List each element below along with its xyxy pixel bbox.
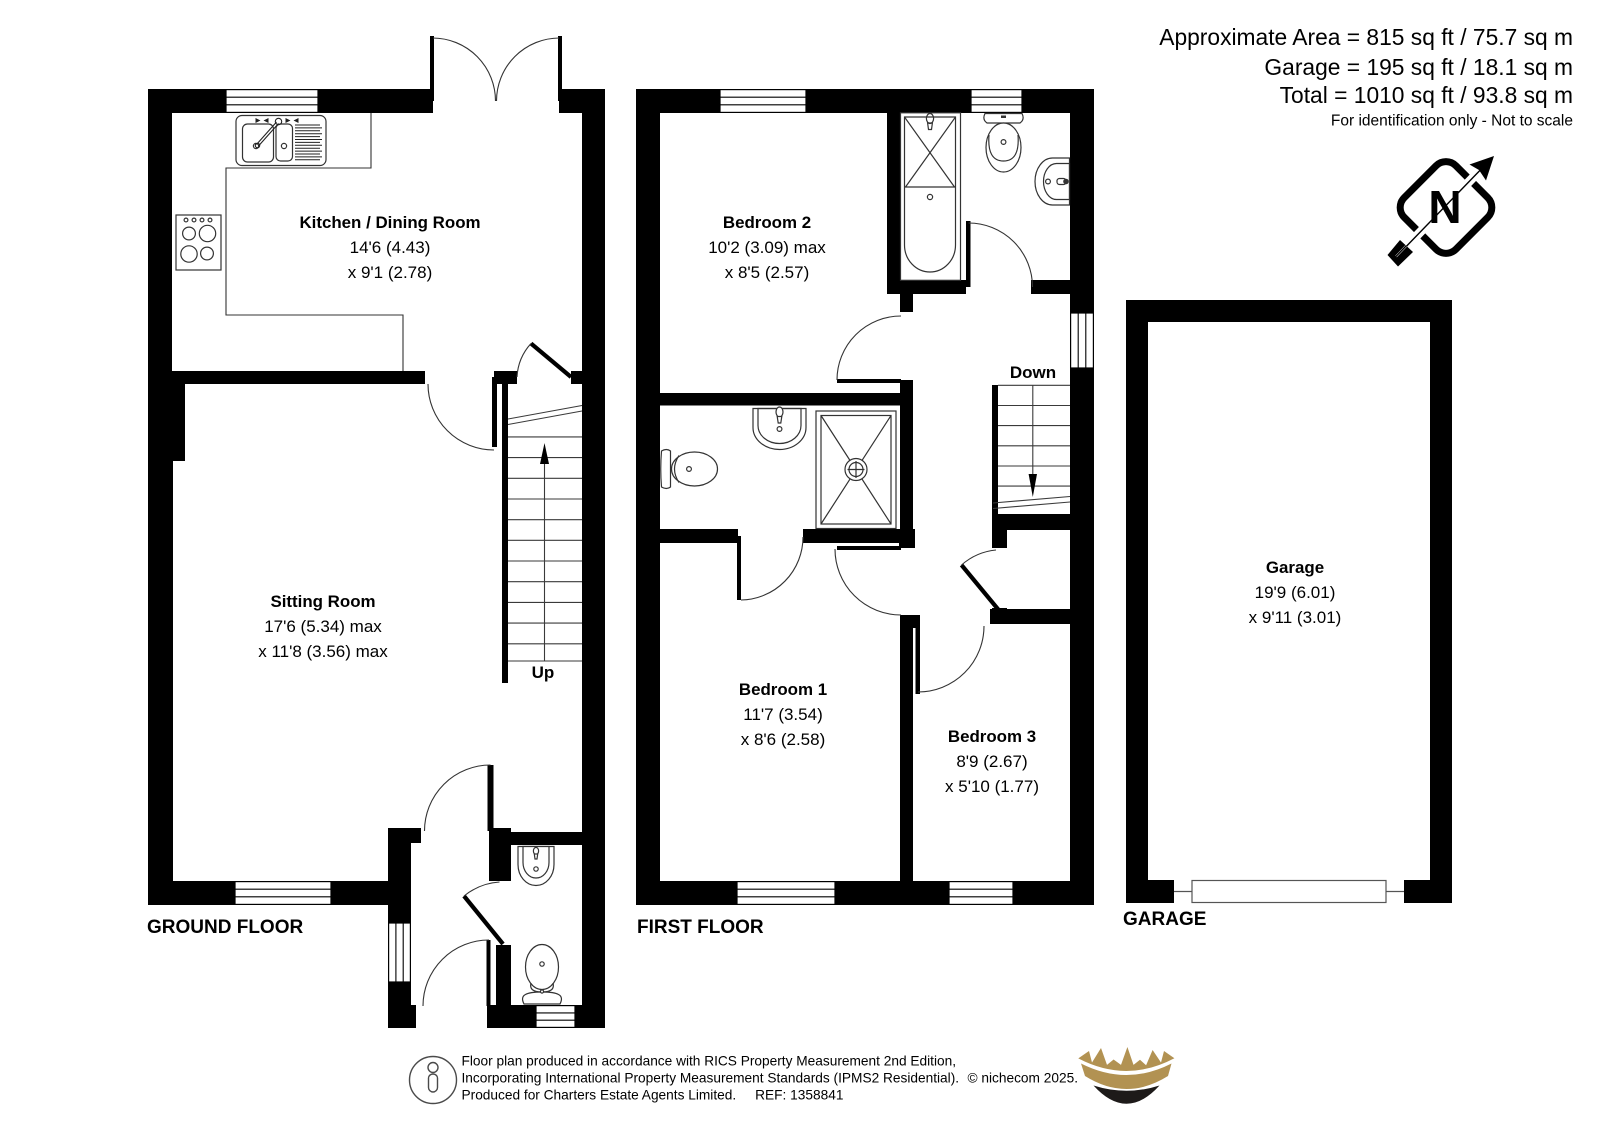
svg-text:Kitchen / Dining Room: Kitchen / Dining Room xyxy=(299,213,480,232)
svg-text:GARAGE: GARAGE xyxy=(1123,909,1206,930)
svg-text:8'9 (2.67): 8'9 (2.67) xyxy=(956,752,1027,771)
svg-text:Up: Up xyxy=(532,663,555,682)
svg-text:Garage: Garage xyxy=(1266,558,1324,577)
svg-text:Down: Down xyxy=(1010,363,1056,382)
svg-text:x 11'8 (3.56) max: x 11'8 (3.56) max xyxy=(258,642,388,661)
svg-text:14'6 (4.43): 14'6 (4.43) xyxy=(350,238,431,257)
svg-text:x 9'1 (2.78): x 9'1 (2.78) xyxy=(348,263,433,282)
svg-text:N: N xyxy=(1428,181,1461,233)
svg-text:For identification only - Not: For identification only - Not to scale xyxy=(1331,113,1573,130)
svg-text:GROUND FLOOR: GROUND FLOOR xyxy=(147,917,303,938)
svg-text:Garage = 195 sq ft / 18.1 sq m: Garage = 195 sq ft / 18.1 sq m xyxy=(1264,54,1573,80)
svg-text:10'2 (3.09) max: 10'2 (3.09) max xyxy=(708,238,826,257)
svg-text:x 8'5 (2.57): x 8'5 (2.57) xyxy=(725,263,810,282)
svg-text:Bedroom 3: Bedroom 3 xyxy=(948,727,1036,746)
svg-text:x 9'11 (3.01): x 9'11 (3.01) xyxy=(1249,608,1342,627)
svg-text:FIRST FLOOR: FIRST FLOOR xyxy=(637,917,764,938)
svg-text:Incorporating International Pr: Incorporating International Property Mea… xyxy=(462,1071,960,1086)
svg-text:Bedroom 1: Bedroom 1 xyxy=(739,680,827,699)
svg-text:© nichecom 2025.: © nichecom 2025. xyxy=(967,1071,1078,1086)
svg-text:Bedroom 2: Bedroom 2 xyxy=(723,213,811,232)
svg-text:Approximate Area = 815 sq ft /: Approximate Area = 815 sq ft / 75.7 sq m xyxy=(1159,24,1573,50)
svg-text:x 8'6 (2.58): x 8'6 (2.58) xyxy=(741,730,826,749)
svg-text:11'7 (3.54): 11'7 (3.54) xyxy=(743,705,822,724)
svg-text:19'9 (6.01): 19'9 (6.01) xyxy=(1255,583,1336,602)
svg-text:Produced for Charters Estate A: Produced for Charters Estate Agents Limi… xyxy=(462,1088,844,1103)
svg-text:Sitting Room: Sitting Room xyxy=(270,592,375,611)
svg-text:Total = 1010 sq ft / 93.8 sq m: Total = 1010 sq ft / 93.8 sq m xyxy=(1280,82,1573,108)
svg-text:Floor plan produced in accorda: Floor plan produced in accordance with R… xyxy=(462,1054,957,1069)
svg-text:x 5'10 (1.77): x 5'10 (1.77) xyxy=(945,777,1039,796)
svg-text:17'6 (5.34) max: 17'6 (5.34) max xyxy=(264,617,382,636)
